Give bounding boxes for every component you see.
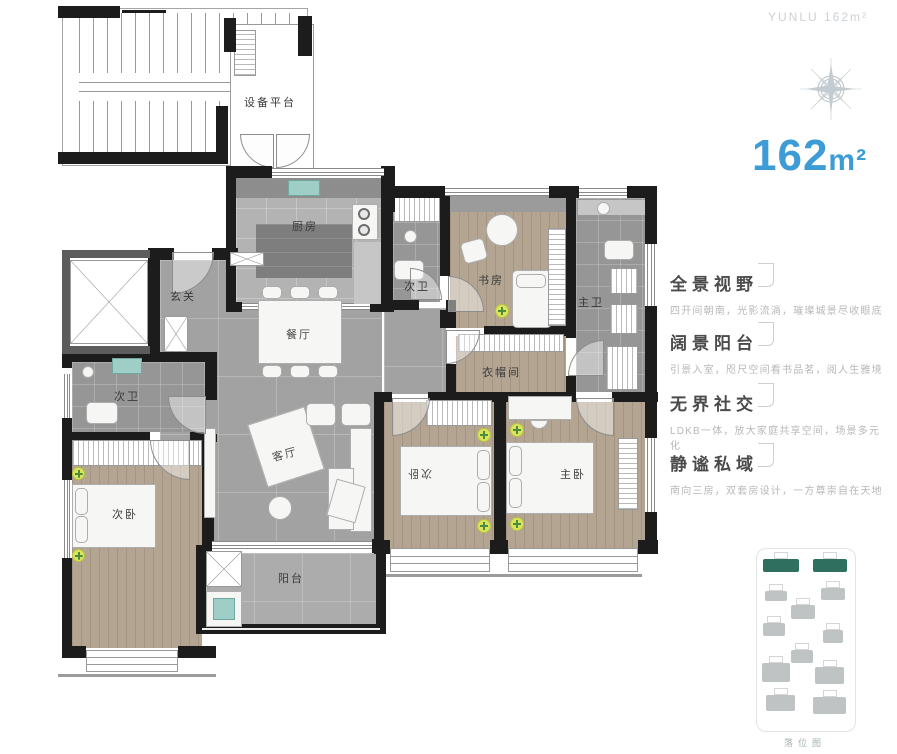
wall: [612, 392, 658, 402]
laundry-sink: [206, 551, 242, 587]
hall-cabinet: [230, 252, 264, 266]
shower-head-icon: [82, 366, 94, 378]
wall: [62, 250, 70, 354]
plant-icon: [510, 423, 524, 437]
dining-chair: [290, 286, 310, 299]
site-building: [791, 605, 815, 619]
wall: [62, 250, 150, 258]
building-number-chip: [796, 598, 810, 605]
building-number-chip: [774, 552, 788, 559]
tv-cabinet: [204, 428, 216, 518]
ottoman: [268, 496, 292, 520]
area-size: 162m²: [752, 134, 867, 178]
window: [647, 244, 655, 306]
site-building: [766, 695, 795, 711]
room-label-balcony: 阳台: [278, 570, 304, 586]
feature-block: 静谧私域 南向三房，双套房设计，一方尊崇自在天地: [670, 450, 890, 497]
burner-icon: [358, 224, 370, 236]
pillow: [477, 482, 490, 512]
room-label-kitchen: 厨房: [292, 218, 318, 234]
feature-block: 无界社交 LDKB一体，放大家庭共享空间，场景多元化: [670, 390, 890, 452]
bay-window: [508, 548, 638, 572]
building-number-chip: [823, 690, 837, 697]
area-value: 162: [752, 131, 828, 180]
pillow: [509, 478, 522, 508]
plant-icon: [495, 304, 509, 318]
dining-chair: [262, 286, 282, 299]
bracket-decoration: [758, 322, 774, 346]
kitchen-side-counter: [354, 242, 381, 304]
wall: [62, 558, 72, 650]
wall: [645, 192, 657, 244]
room-label-bed-mid: 次卧: [406, 466, 432, 482]
site-building: [813, 697, 846, 714]
room-label-bath-master: 主卫: [578, 294, 604, 310]
window-sill: [58, 674, 216, 677]
building-number-chip: [767, 616, 781, 623]
wall: [645, 306, 657, 438]
site-building: [763, 623, 785, 636]
feature-desc: LDKB一体，放大家庭共享空间，场景多元化: [670, 422, 890, 452]
wall: [224, 18, 236, 52]
feature-block: 阔景阳台 引景入室，咫尺空间看书品茗，阅人生雅境: [670, 329, 890, 376]
study-bay-strip: [450, 196, 566, 212]
site-building: [762, 663, 790, 682]
building-number-chip: [823, 552, 837, 559]
wall: [494, 392, 506, 548]
wall: [490, 540, 508, 554]
window-seat: [618, 438, 638, 510]
pillow: [75, 488, 88, 515]
vanity-counter: [578, 200, 645, 215]
balcony-glass-line: [202, 628, 380, 630]
feature-title: 阔景阳台: [670, 329, 758, 354]
round-table: [486, 214, 518, 246]
wall: [62, 352, 72, 368]
wall: [205, 352, 217, 400]
bathtub: [610, 304, 638, 334]
room-label-bath-mid: 次卫: [404, 278, 430, 294]
building-number-chip: [795, 643, 809, 650]
wall: [226, 178, 236, 312]
plant-icon: [72, 467, 85, 480]
wall: [566, 376, 576, 392]
window: [647, 438, 655, 512]
room-label-foyer: 玄关: [170, 288, 196, 304]
pillow: [75, 516, 88, 543]
plant-icon: [72, 549, 85, 562]
dining-chair: [318, 365, 338, 378]
feature-title: 全景视野: [670, 270, 758, 295]
wall: [393, 186, 445, 198]
wall: [178, 646, 216, 658]
pillow: [516, 274, 546, 288]
room-label-dining: 餐厅: [286, 326, 312, 342]
site-building: [763, 559, 799, 572]
floor-plan-page: 设备平台: [0, 0, 897, 754]
room-label-bed-left: 次卧: [112, 506, 138, 522]
washer-drum: [213, 598, 235, 620]
site-building: [765, 591, 787, 601]
dining-chair: [290, 365, 310, 378]
wall: [638, 540, 658, 554]
wall: [122, 10, 166, 13]
feature-title: 无界社交: [670, 390, 758, 415]
wall: [216, 106, 228, 164]
plant-icon: [510, 517, 524, 531]
wall: [298, 16, 312, 56]
equipment-shelf: [234, 30, 256, 76]
window: [64, 374, 70, 418]
bracket-decoration: [758, 263, 774, 287]
wall: [62, 646, 86, 658]
wall: [148, 248, 174, 260]
wall: [62, 442, 72, 480]
site-building: [821, 588, 845, 600]
bathtub: [610, 268, 638, 294]
pillow: [477, 450, 490, 480]
sliding-door: [212, 541, 372, 549]
site-plan-panel: [756, 548, 856, 732]
kitchen-sink: [288, 180, 320, 196]
feature-block: 全景视野 四开间朝南，光影流淌，璀璨城景尽收眼底: [670, 270, 890, 317]
room-label-study: 书房: [478, 272, 504, 288]
plant-icon: [477, 519, 491, 533]
feature-desc: 四开间朝南，光影流淌，璀璨城景尽收眼底: [670, 302, 890, 317]
burner-icon: [358, 208, 370, 220]
door-arc: [568, 340, 604, 376]
building-number-chip: [774, 688, 788, 695]
wall: [566, 192, 576, 338]
bracket-decoration: [758, 383, 774, 407]
room-label-bath-left: 次卫: [114, 388, 140, 404]
room-label-closet: 衣帽间: [482, 364, 521, 380]
plant-icon: [477, 428, 491, 442]
wall: [58, 6, 120, 18]
basin-icon: [597, 202, 610, 215]
basin-icon: [404, 230, 417, 243]
watermark: YUNLU 162m²: [768, 10, 868, 24]
elevator-x-icon: [70, 260, 148, 344]
building-number-chip: [823, 660, 837, 667]
building-number-chip: [769, 656, 783, 663]
bathroom-sink: [112, 358, 142, 374]
wall: [376, 545, 386, 633]
bracket-decoration: [758, 443, 774, 467]
dresser: [508, 396, 572, 420]
wall: [196, 545, 206, 633]
bath-cabinet: [393, 196, 440, 222]
armchair: [306, 403, 336, 426]
dining-chair: [318, 286, 338, 299]
compass-rose-icon: [798, 56, 864, 122]
wall: [226, 166, 272, 178]
dining-chair: [262, 365, 282, 378]
bay-window: [86, 650, 178, 672]
site-plan-caption: 落位图: [756, 736, 854, 749]
toilet-icon: [604, 240, 634, 260]
shower-stall: [606, 346, 638, 390]
wardrobe: [426, 400, 492, 426]
feature-desc: 引景入室，咫尺空间看书品茗，阅人生雅境: [670, 361, 890, 376]
pillow: [509, 446, 522, 476]
wall: [226, 302, 242, 312]
wall: [374, 392, 384, 548]
room-label-equipment: 设备平台: [244, 94, 296, 110]
site-plan-buildings: [757, 549, 855, 731]
wall: [58, 152, 216, 164]
site-building: [815, 667, 844, 684]
wardrobe: [548, 228, 566, 326]
toilet-icon: [86, 402, 118, 424]
feature-desc: 南向三房，双套房设计，一方尊崇自在天地: [670, 482, 890, 497]
feature-title: 静谧私域: [670, 450, 758, 475]
window: [579, 188, 627, 196]
window-sill: [386, 574, 642, 577]
window: [272, 168, 384, 176]
wall: [62, 346, 150, 354]
building-number-chip: [826, 623, 840, 630]
site-building: [813, 559, 847, 572]
site-building: [823, 630, 843, 643]
wall: [393, 300, 419, 310]
area-unit: m²: [828, 144, 867, 177]
wall: [381, 188, 393, 312]
site-building: [791, 650, 813, 663]
wall: [440, 192, 450, 276]
window: [445, 188, 549, 196]
armchair: [341, 403, 371, 426]
wall: [148, 250, 160, 354]
room-label-bed-master: 主卧: [560, 466, 586, 482]
window: [64, 480, 70, 558]
floor-corridor: [384, 308, 446, 394]
shoe-cabinet: [164, 316, 188, 352]
building-number-chip: [826, 581, 840, 588]
wall: [446, 364, 456, 392]
bay-window: [390, 548, 490, 572]
building-number-chip: [769, 584, 783, 591]
